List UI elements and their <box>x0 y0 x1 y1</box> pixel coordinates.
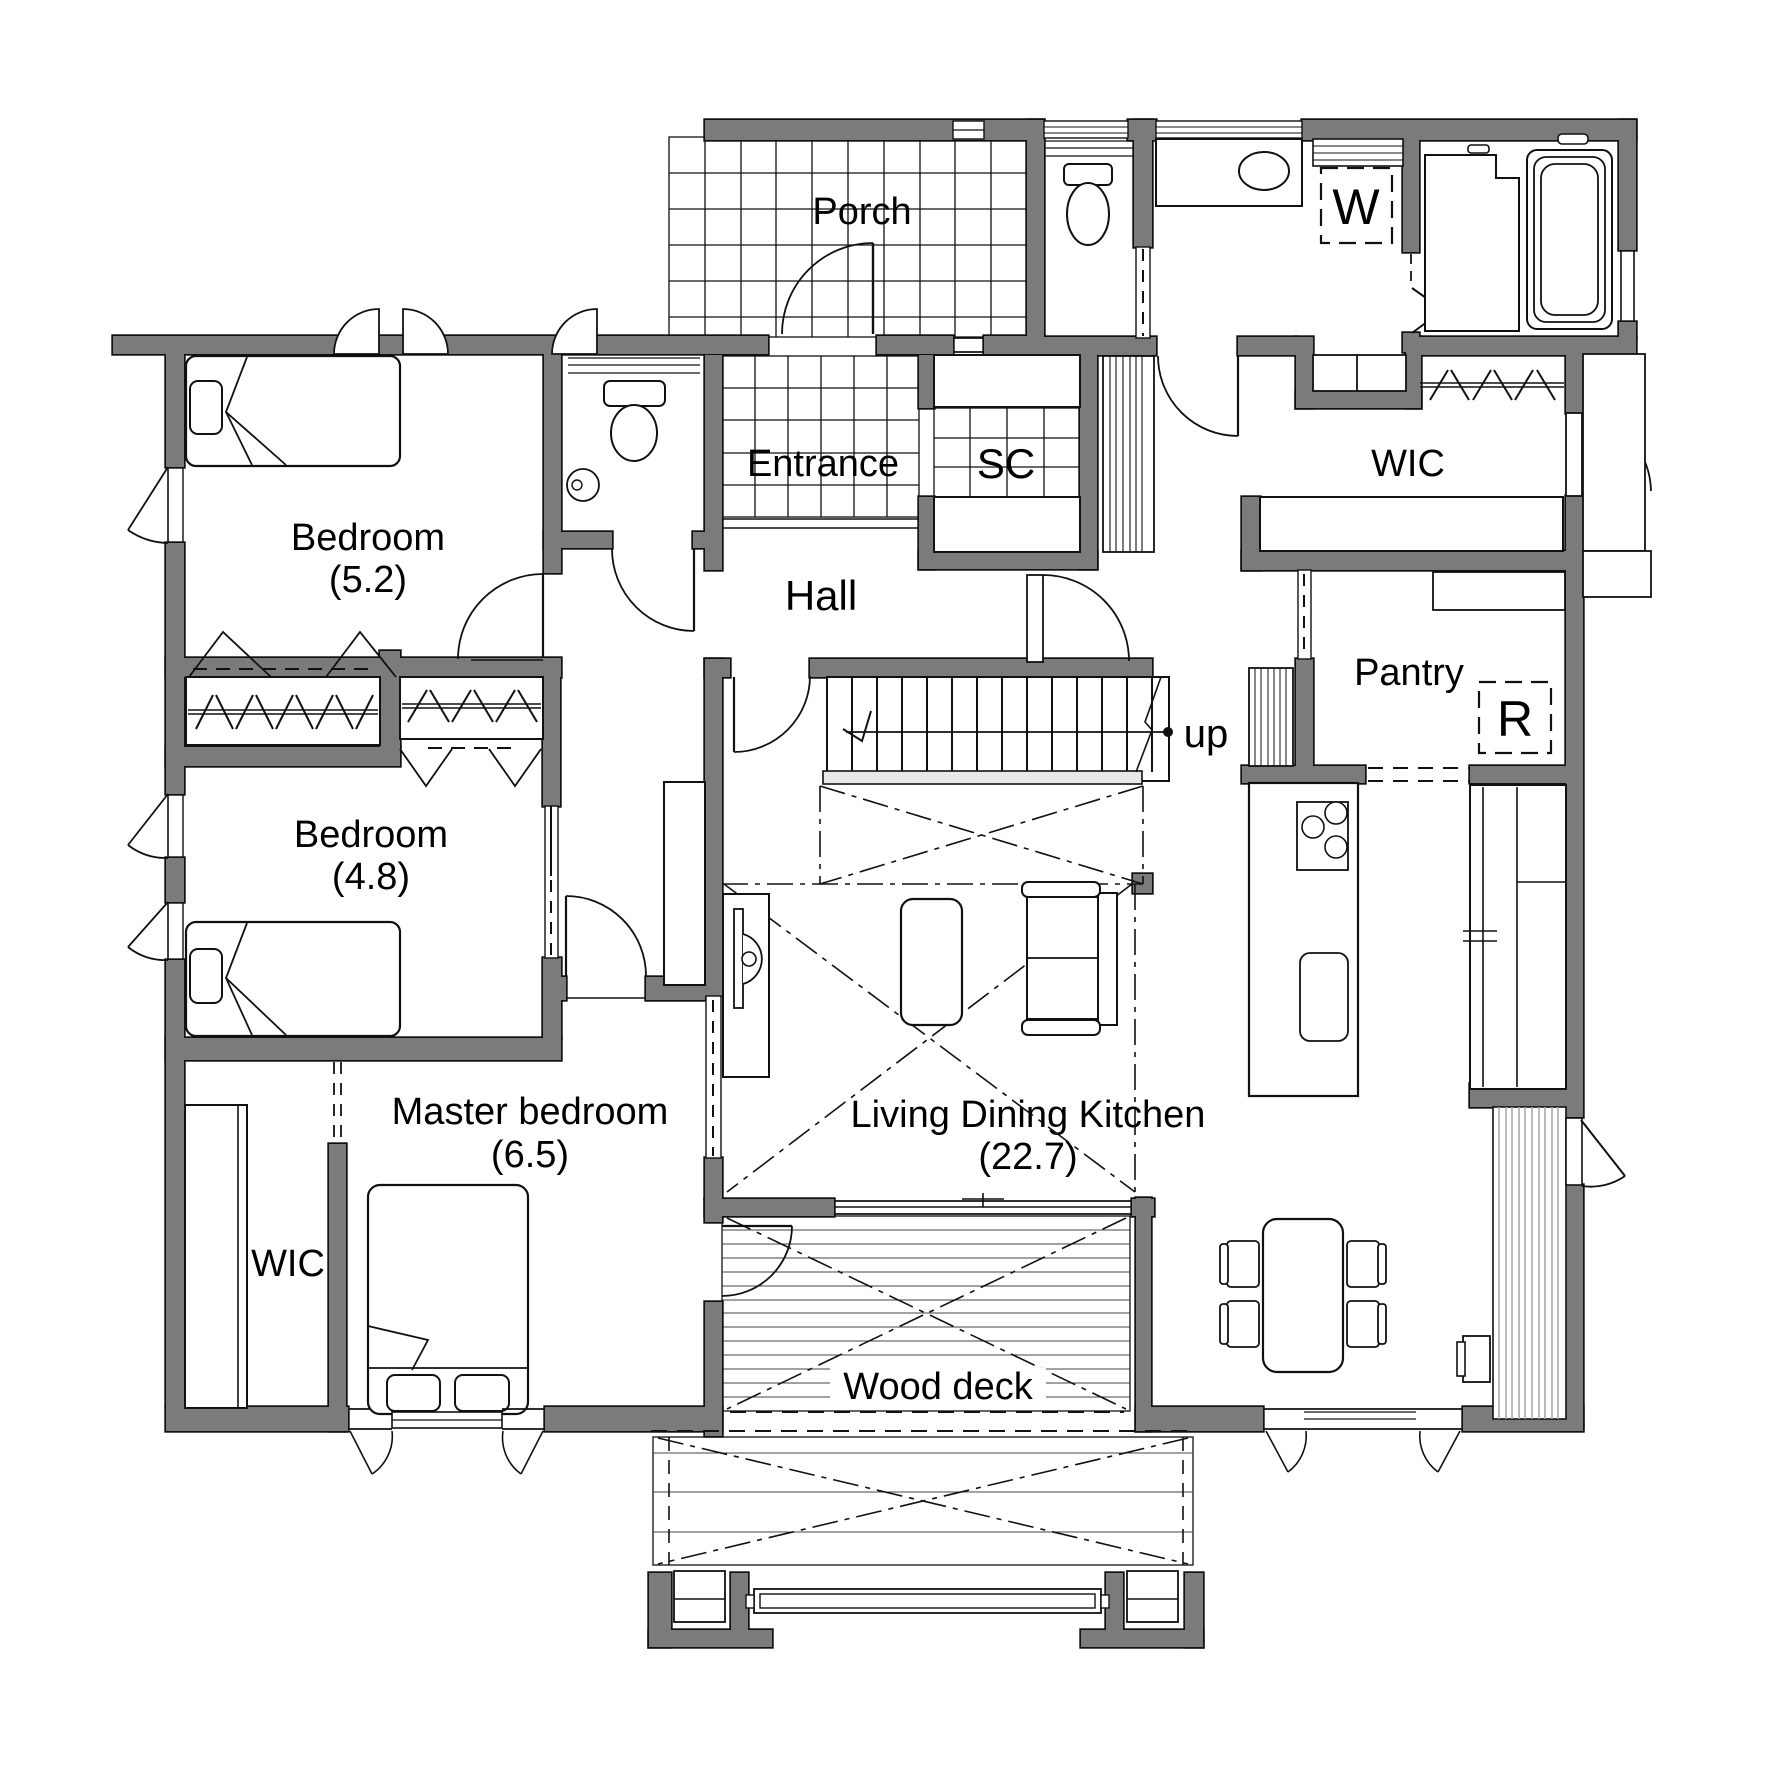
svg-text:WIC: WIC <box>1371 443 1445 485</box>
svg-text:SC: SC <box>977 440 1035 487</box>
svg-text:Porch: Porch <box>812 191 911 233</box>
svg-text:W: W <box>1332 179 1380 235</box>
svg-text:WIC: WIC <box>251 1243 325 1285</box>
svg-text:Wood deck: Wood deck <box>843 1366 1033 1408</box>
svg-text:(22.7): (22.7) <box>978 1136 1077 1178</box>
svg-text:(6.5): (6.5) <box>491 1134 569 1176</box>
svg-text:(5.2): (5.2) <box>329 559 407 601</box>
svg-text:R: R <box>1497 691 1533 747</box>
svg-text:Hall: Hall <box>785 572 857 619</box>
svg-text:(4.8): (4.8) <box>332 856 410 898</box>
svg-text:up: up <box>1184 712 1229 756</box>
svg-text:Living Dining Kitchen: Living Dining Kitchen <box>851 1094 1206 1136</box>
svg-text:Bedroom: Bedroom <box>294 814 448 856</box>
svg-text:Bedroom: Bedroom <box>291 517 445 559</box>
svg-text:Pantry: Pantry <box>1354 652 1464 694</box>
svg-text:Master bedroom: Master bedroom <box>392 1091 669 1133</box>
svg-text:Entrance: Entrance <box>747 443 899 485</box>
